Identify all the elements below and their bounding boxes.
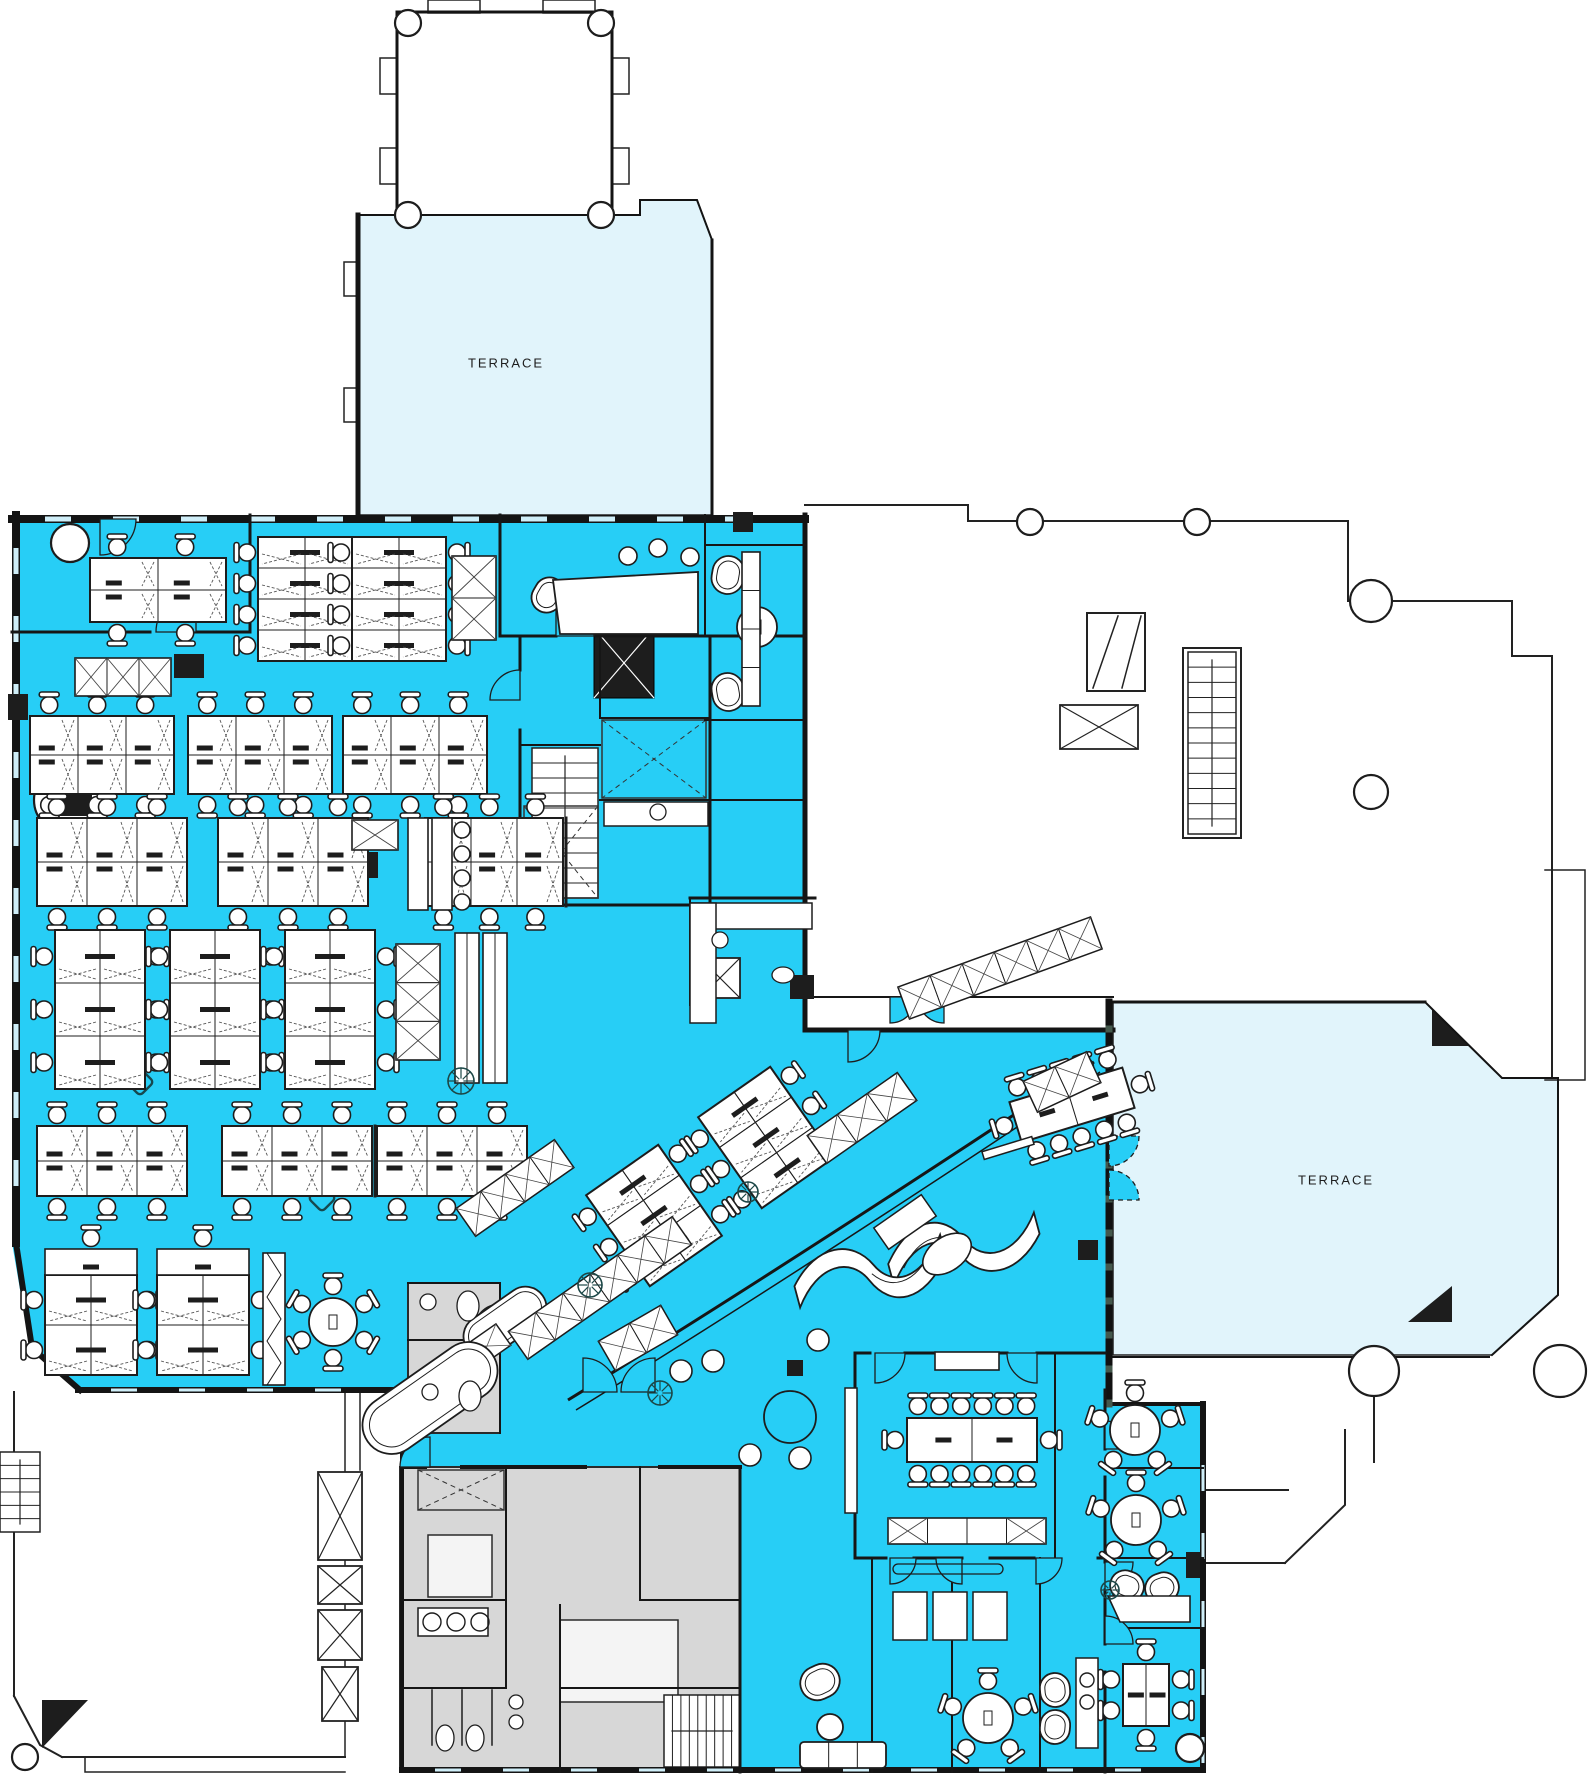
stool bbox=[649, 539, 667, 557]
chair bbox=[908, 1393, 928, 1415]
chair bbox=[146, 947, 168, 967]
chair bbox=[107, 625, 127, 647]
chair bbox=[278, 794, 298, 816]
fixture bbox=[650, 804, 666, 820]
chair bbox=[352, 692, 372, 714]
chair bbox=[448, 692, 468, 714]
chair bbox=[1173, 1701, 1195, 1721]
chair bbox=[261, 1000, 283, 1020]
column bbox=[1017, 509, 1043, 535]
chair bbox=[328, 605, 350, 625]
chair bbox=[133, 1340, 155, 1360]
chair bbox=[261, 947, 283, 967]
chair bbox=[147, 794, 167, 816]
chair bbox=[293, 692, 313, 714]
chair bbox=[332, 1102, 352, 1124]
sofa bbox=[800, 1742, 886, 1768]
chair bbox=[282, 1199, 302, 1221]
chair bbox=[31, 1053, 53, 1073]
column bbox=[1350, 580, 1392, 622]
chair bbox=[21, 1340, 43, 1360]
chair bbox=[433, 909, 453, 931]
chair bbox=[323, 1350, 343, 1372]
chair bbox=[328, 909, 348, 931]
stool bbox=[454, 870, 470, 886]
chair bbox=[908, 1466, 928, 1488]
stool bbox=[670, 1360, 692, 1382]
column bbox=[1354, 775, 1388, 809]
chair bbox=[995, 1393, 1015, 1415]
chair bbox=[400, 692, 420, 714]
fixture bbox=[509, 1715, 523, 1729]
office-floor-plan: TERRACE TERRACE bbox=[0, 0, 1589, 1784]
chair bbox=[147, 1199, 167, 1221]
chair bbox=[133, 1290, 155, 1310]
chair bbox=[328, 636, 350, 656]
chair bbox=[261, 1053, 283, 1073]
stool bbox=[454, 822, 470, 838]
chair bbox=[234, 574, 256, 594]
chair bbox=[978, 1668, 998, 1690]
chair bbox=[951, 1466, 971, 1488]
column bbox=[1176, 1734, 1204, 1762]
chair bbox=[1098, 1701, 1120, 1721]
chair bbox=[97, 794, 117, 816]
chair bbox=[81, 1225, 101, 1247]
chair bbox=[1126, 1470, 1146, 1492]
chair bbox=[228, 909, 248, 931]
column bbox=[588, 10, 614, 36]
chair bbox=[234, 605, 256, 625]
round-table bbox=[817, 1714, 843, 1740]
chair bbox=[47, 1102, 67, 1124]
chair bbox=[930, 1393, 950, 1415]
chair bbox=[197, 692, 217, 714]
wave-shelf bbox=[263, 1253, 285, 1385]
stool bbox=[739, 1444, 761, 1466]
chair bbox=[1125, 1380, 1145, 1402]
fixture bbox=[772, 967, 794, 983]
column bbox=[1184, 509, 1210, 535]
chair bbox=[234, 636, 256, 656]
chair bbox=[387, 1199, 407, 1221]
chair bbox=[234, 543, 256, 563]
chair bbox=[1016, 1466, 1036, 1488]
chair bbox=[147, 909, 167, 931]
chair bbox=[146, 1000, 168, 1020]
chair bbox=[107, 534, 127, 556]
stair bbox=[1188, 652, 1236, 834]
fixture bbox=[422, 1384, 438, 1400]
bookshelf bbox=[742, 552, 760, 706]
chair bbox=[437, 1199, 457, 1221]
storage-lockers bbox=[75, 658, 171, 696]
chair bbox=[479, 794, 499, 816]
chair bbox=[973, 1393, 993, 1415]
chair bbox=[328, 543, 350, 563]
stair bbox=[0, 1452, 40, 1532]
chair bbox=[47, 1199, 67, 1221]
stool bbox=[454, 846, 470, 862]
av-cabinet bbox=[888, 1518, 1046, 1544]
stair bbox=[664, 1695, 740, 1767]
armchair bbox=[1039, 1672, 1072, 1708]
chair bbox=[193, 1225, 213, 1247]
storage-lockers bbox=[352, 820, 398, 850]
stool bbox=[619, 547, 637, 565]
chair bbox=[31, 1000, 53, 1020]
chair bbox=[387, 1102, 407, 1124]
chair bbox=[1098, 1670, 1120, 1690]
chair bbox=[147, 1102, 167, 1124]
chair bbox=[47, 909, 67, 931]
fixture bbox=[436, 1725, 454, 1751]
chair bbox=[21, 1290, 43, 1310]
chair bbox=[328, 574, 350, 594]
chair bbox=[228, 794, 248, 816]
chair bbox=[232, 1102, 252, 1124]
column bbox=[51, 524, 89, 562]
chair bbox=[146, 1053, 168, 1073]
stool bbox=[454, 894, 470, 910]
chair bbox=[352, 797, 372, 819]
fixture bbox=[459, 1381, 481, 1411]
chair bbox=[245, 797, 265, 819]
chair bbox=[995, 1466, 1015, 1488]
chair bbox=[197, 797, 217, 819]
terrace-east-area bbox=[1113, 1002, 1558, 1355]
desk-cluster bbox=[261, 930, 399, 1089]
fixture bbox=[420, 1294, 436, 1310]
stool bbox=[789, 1447, 811, 1469]
chair bbox=[433, 794, 453, 816]
stool bbox=[681, 548, 699, 566]
column bbox=[12, 1744, 38, 1770]
column bbox=[395, 202, 421, 228]
chair bbox=[479, 909, 499, 931]
chair bbox=[1041, 1430, 1063, 1450]
storage-lockers bbox=[452, 556, 496, 640]
chair bbox=[525, 909, 545, 931]
chair bbox=[323, 1273, 343, 1295]
terrace-north-area bbox=[358, 200, 712, 515]
column bbox=[395, 10, 421, 36]
column bbox=[1349, 1346, 1399, 1396]
column bbox=[588, 202, 614, 228]
chair bbox=[47, 794, 67, 816]
chair bbox=[487, 1102, 507, 1124]
chair bbox=[97, 1199, 117, 1221]
chair bbox=[332, 1199, 352, 1221]
chair bbox=[882, 1430, 904, 1450]
floor-plan-svg bbox=[0, 0, 1589, 1784]
stool bbox=[807, 1329, 829, 1351]
chair bbox=[1173, 1670, 1195, 1690]
chair bbox=[39, 692, 59, 714]
desk-cluster bbox=[37, 1102, 187, 1220]
chair bbox=[232, 1199, 252, 1221]
chair bbox=[175, 534, 195, 556]
chair bbox=[930, 1466, 950, 1488]
chair bbox=[1136, 1639, 1156, 1661]
chair bbox=[973, 1466, 993, 1488]
chair bbox=[328, 794, 348, 816]
column bbox=[1534, 1345, 1586, 1397]
fixture bbox=[457, 1291, 479, 1321]
fixture bbox=[466, 1725, 484, 1751]
storage-lockers bbox=[396, 944, 440, 1060]
chair bbox=[437, 1102, 457, 1124]
chair bbox=[278, 909, 298, 931]
armchair bbox=[1039, 1709, 1072, 1745]
chair bbox=[97, 909, 117, 931]
chair bbox=[282, 1102, 302, 1124]
chair bbox=[175, 625, 195, 647]
chair bbox=[951, 1393, 971, 1415]
chair bbox=[1136, 1730, 1156, 1752]
locker-row bbox=[898, 917, 1102, 1019]
chair bbox=[97, 1102, 117, 1124]
chair bbox=[31, 947, 53, 967]
stool bbox=[702, 1350, 724, 1372]
fixture bbox=[712, 932, 728, 948]
chair bbox=[245, 692, 265, 714]
chair bbox=[1016, 1393, 1036, 1415]
chair bbox=[525, 794, 545, 816]
chair bbox=[400, 797, 420, 819]
fixture bbox=[509, 1695, 523, 1709]
